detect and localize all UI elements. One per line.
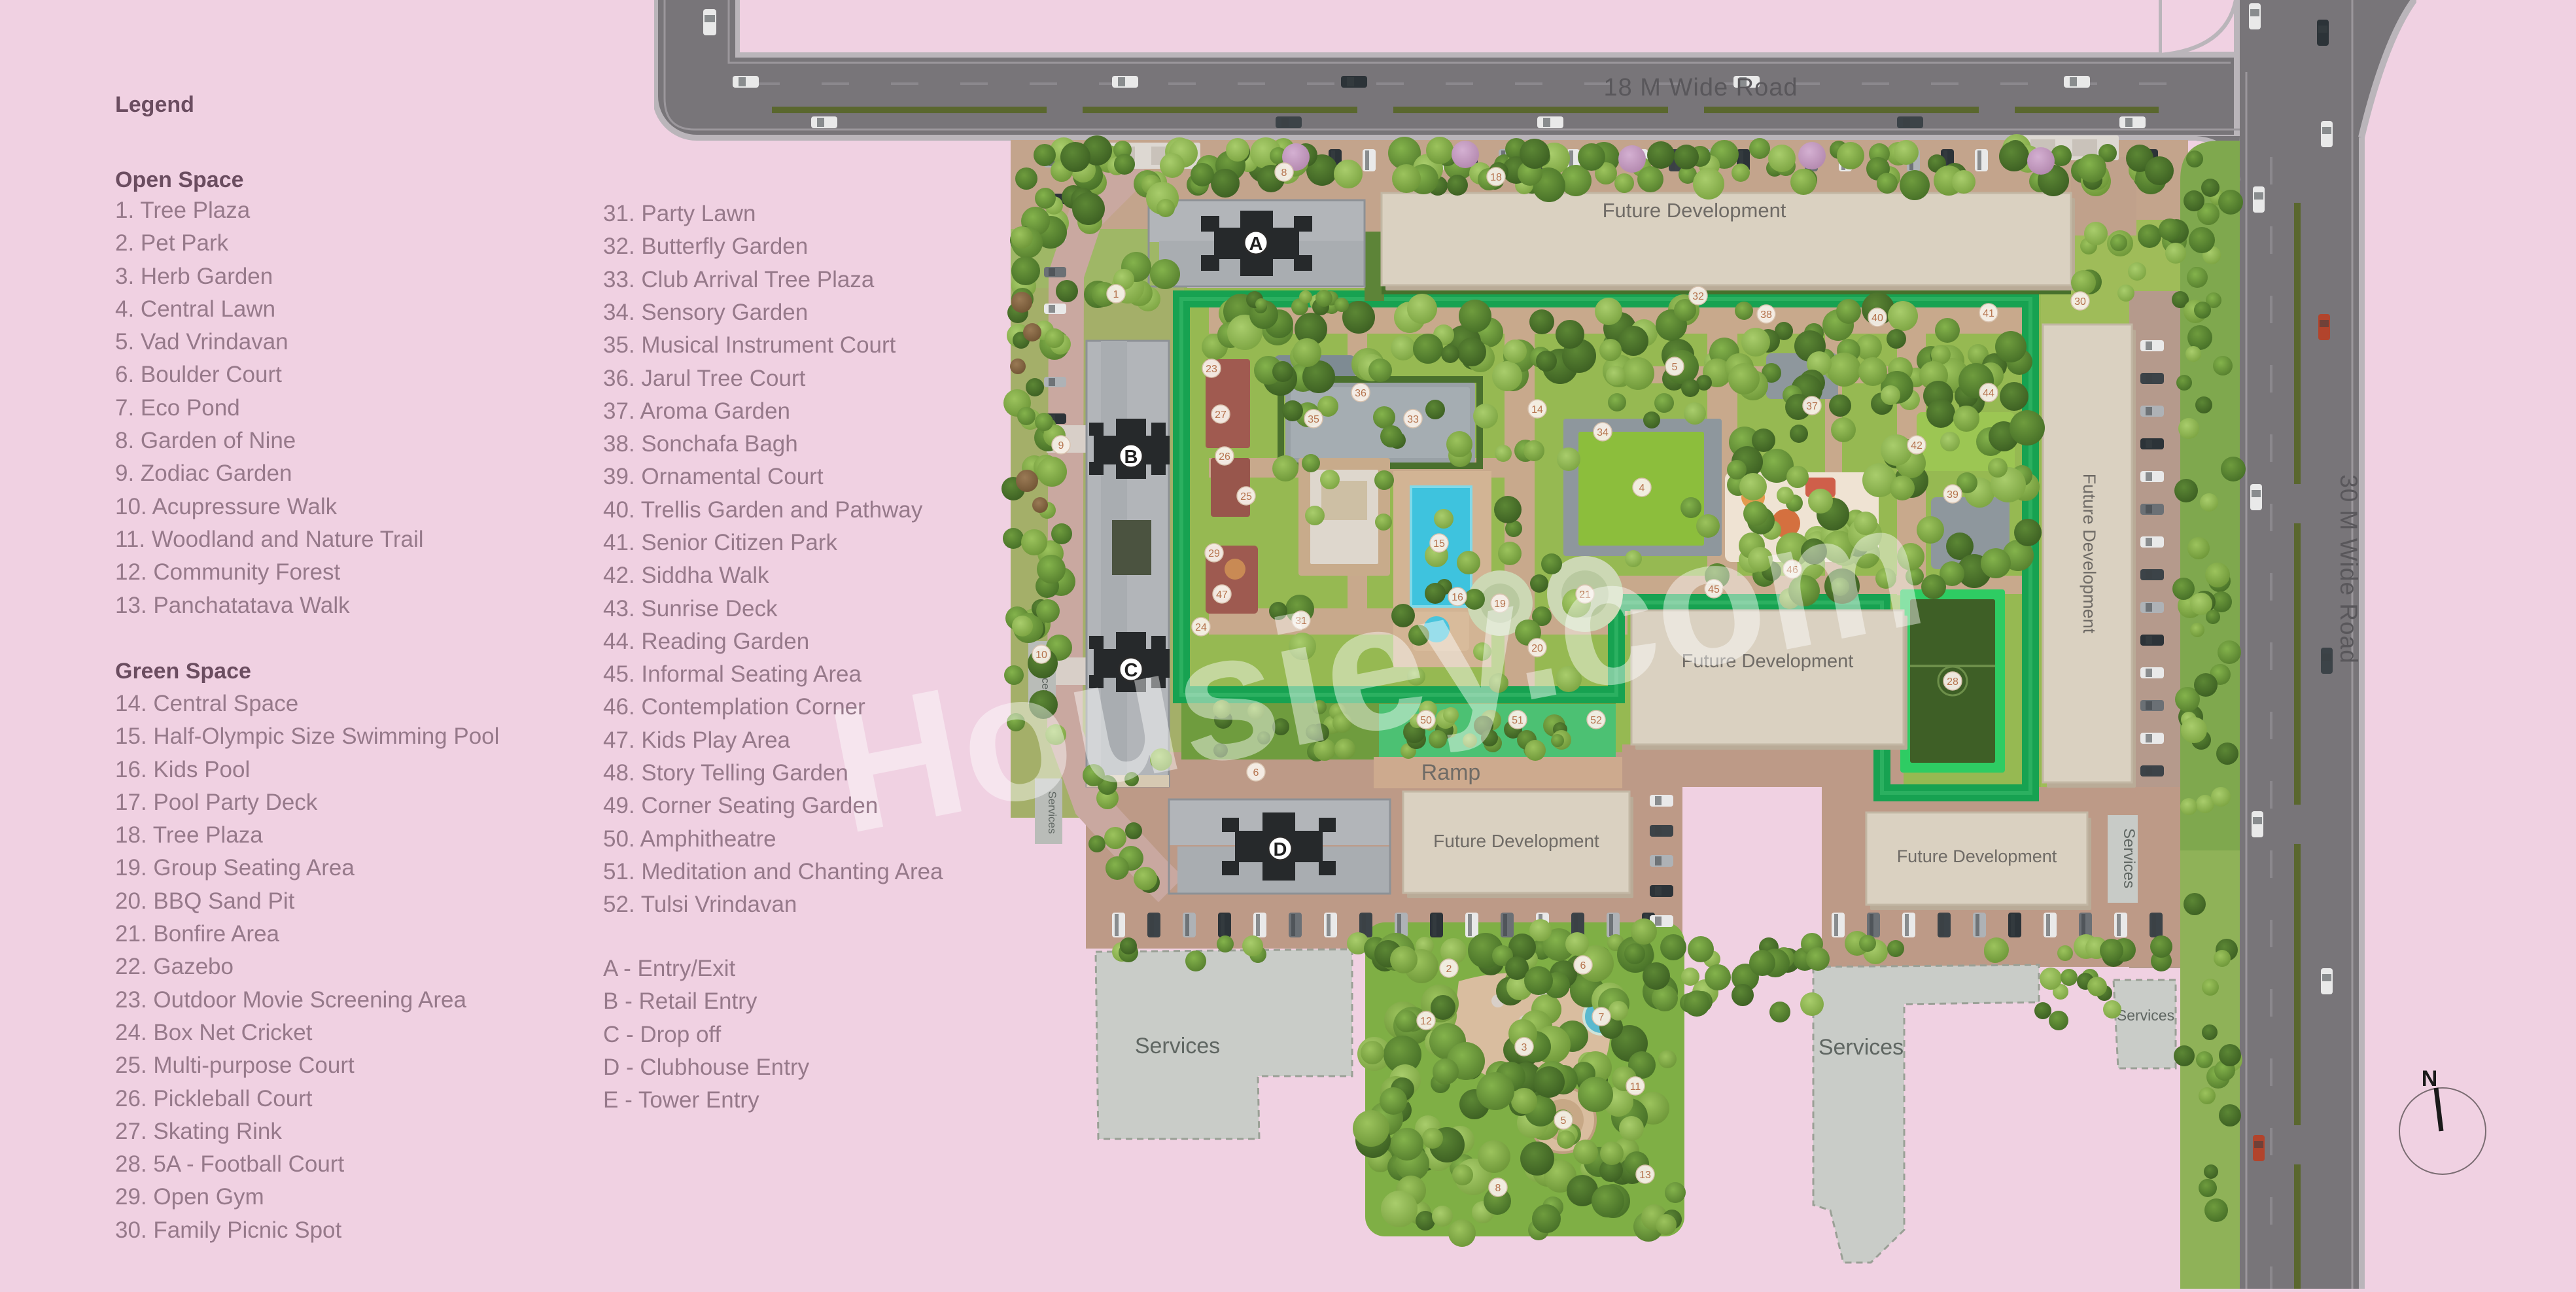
svg-text:42. Siddha Walk: 42. Siddha Walk: [603, 563, 769, 588]
svg-text:28: 28: [1947, 676, 1958, 688]
svg-text:8: 8: [1495, 1183, 1501, 1194]
svg-text:11. Woodland and Nature Trail: 11. Woodland and Nature Trail: [115, 527, 424, 552]
svg-text:13. Panchatatava Walk: 13. Panchatatava Walk: [115, 593, 350, 618]
svg-text:D - Clubhouse Entry: D - Clubhouse Entry: [603, 1055, 810, 1080]
svg-text:40: 40: [1871, 313, 1883, 324]
svg-text:20. BBQ Sand Pit: 20. BBQ Sand Pit: [115, 888, 295, 914]
svg-text:50. Amphitheatre: 50. Amphitheatre: [603, 826, 776, 852]
svg-text:22. Gazebo: 22. Gazebo: [115, 954, 234, 979]
svg-text:12: 12: [1420, 1016, 1432, 1027]
svg-text:1. Tree Plaza: 1. Tree Plaza: [115, 198, 251, 223]
svg-text:4. Central Lawn: 4. Central Lawn: [115, 296, 275, 322]
svg-text:25. Multi-purpose Court: 25. Multi-purpose Court: [115, 1053, 355, 1078]
svg-text:4: 4: [1639, 483, 1645, 494]
svg-text:3: 3: [1522, 1042, 1527, 1053]
svg-text:5: 5: [1672, 362, 1678, 373]
svg-text:Services: Services: [1819, 1035, 1904, 1060]
svg-text:49. Corner Seating Garden: 49. Corner Seating Garden: [603, 793, 878, 818]
svg-text:D: D: [1274, 839, 1287, 860]
svg-text:2. Pet Park: 2. Pet Park: [115, 230, 229, 256]
svg-text:8. Garden of Nine: 8. Garden of Nine: [115, 428, 296, 453]
svg-text:46. Contemplation Corner: 46. Contemplation Corner: [603, 694, 865, 720]
svg-text:14: 14: [1531, 404, 1543, 415]
svg-text:Future Development: Future Development: [2080, 474, 2099, 634]
svg-text:30 M Wide Road: 30 M Wide Road: [2335, 474, 2362, 664]
svg-text:31. Party Lawn: 31. Party Lawn: [603, 201, 756, 226]
svg-text:10. Acupressure Walk: 10. Acupressure Walk: [115, 494, 338, 519]
svg-text:47. Kids Play Area: 47. Kids Play Area: [603, 727, 791, 753]
svg-text:A - Entry/Exit: A - Entry/Exit: [603, 956, 736, 981]
svg-text:C - Drop off: C - Drop off: [603, 1022, 722, 1047]
svg-text:45. Informal Seating Area: 45. Informal Seating Area: [603, 661, 862, 687]
svg-text:B: B: [1124, 447, 1138, 468]
svg-text:18: 18: [1490, 172, 1502, 183]
svg-text:17. Pool Party Deck: 17. Pool Party Deck: [115, 790, 318, 815]
svg-text:7: 7: [1599, 1012, 1605, 1023]
svg-text:2: 2: [1446, 964, 1452, 975]
svg-text:9: 9: [1058, 440, 1064, 451]
svg-text:Green Space: Green Space: [115, 659, 251, 684]
svg-text:16. Kids Pool: 16. Kids Pool: [115, 757, 250, 782]
svg-text:23. Outdoor Movie Screening Ar: 23. Outdoor Movie Screening Area: [115, 987, 467, 1013]
svg-text:35: 35: [1308, 414, 1319, 425]
svg-text:12. Community Forest: 12. Community Forest: [115, 559, 341, 585]
svg-text:Services: Services: [1135, 1034, 1220, 1058]
svg-text:42: 42: [1911, 440, 1923, 451]
svg-text:15: 15: [1433, 538, 1445, 550]
svg-text:48. Story Telling Garden: 48. Story Telling Garden: [603, 760, 848, 786]
svg-text:11: 11: [1630, 1081, 1641, 1092]
svg-text:38. Sonchafa Bagh: 38. Sonchafa Bagh: [603, 431, 798, 457]
svg-text:36: 36: [1355, 388, 1366, 399]
svg-text:36. Jarul Tree Court: 36. Jarul Tree Court: [603, 366, 806, 391]
svg-text:Future Development: Future Development: [1897, 847, 2057, 866]
svg-text:24. Box Net Cricket: 24. Box Net Cricket: [115, 1020, 313, 1045]
svg-text:19. Group Seating Area: 19. Group Seating Area: [115, 855, 355, 881]
svg-text:40. Trellis Garden and Pathway: 40. Trellis Garden and Pathway: [603, 497, 923, 523]
svg-text:38: 38: [1760, 309, 1772, 321]
svg-text:3. Herb Garden: 3. Herb Garden: [115, 264, 273, 289]
svg-text:15. Half-Olympic Size Swimming: 15. Half-Olympic Size Swimming Pool: [115, 724, 499, 749]
svg-text:Legend: Legend: [115, 92, 194, 117]
svg-text:33: 33: [1407, 414, 1419, 425]
svg-text:21. Bonfire Area: 21. Bonfire Area: [115, 921, 280, 947]
svg-text:25: 25: [1240, 491, 1252, 502]
svg-text:43. Sunrise Deck: 43. Sunrise Deck: [603, 596, 778, 621]
svg-text:6: 6: [1580, 960, 1586, 971]
svg-text:37: 37: [1806, 401, 1818, 412]
svg-text:9. Zodiac Garden: 9. Zodiac Garden: [115, 461, 292, 486]
svg-text:41: 41: [1983, 308, 1994, 319]
svg-text:27: 27: [1215, 410, 1227, 421]
svg-text:6. Boulder Court: 6. Boulder Court: [115, 362, 282, 387]
svg-text:35. Musical Instrument Court: 35. Musical Instrument Court: [603, 332, 896, 358]
svg-text:Future Development: Future Development: [1433, 831, 1599, 851]
svg-text:39. Ornamental Court: 39. Ornamental Court: [603, 464, 824, 489]
svg-text:Services: Services: [2117, 1007, 2174, 1024]
svg-text:Ramp: Ramp: [1421, 760, 1481, 785]
svg-text:Future Development: Future Development: [1603, 199, 1786, 222]
svg-text:28. 5A - Football Court: 28. 5A - Football Court: [115, 1151, 344, 1177]
svg-text:18 M Wide Road: 18 M Wide Road: [1603, 74, 1798, 101]
svg-text:Open Space: Open Space: [115, 167, 244, 192]
svg-text:A: A: [1249, 234, 1263, 254]
svg-text:41. Senior Citizen Park: 41. Senior Citizen Park: [603, 530, 837, 555]
svg-text:18. Tree Plaza: 18. Tree Plaza: [115, 822, 263, 848]
svg-text:39: 39: [1947, 489, 1958, 500]
svg-text:26. Pickleball Court: 26. Pickleball Court: [115, 1086, 313, 1111]
svg-text:B - Retail Entry: B - Retail Entry: [603, 988, 757, 1014]
svg-text:37. Aroma Garden: 37. Aroma Garden: [603, 398, 790, 424]
svg-text:5: 5: [1561, 1115, 1567, 1126]
svg-text:34. Sensory Garden: 34. Sensory Garden: [603, 300, 808, 325]
svg-text:32. Butterfly Garden: 32. Butterfly Garden: [603, 234, 808, 259]
svg-text:23: 23: [1206, 364, 1217, 375]
svg-text:32: 32: [1692, 291, 1704, 302]
svg-text:30: 30: [2074, 296, 2086, 307]
svg-text:14. Central Space: 14. Central Space: [115, 691, 298, 716]
svg-text:5. Vad Vrindavan: 5. Vad Vrindavan: [115, 329, 288, 355]
svg-text:29: 29: [1208, 548, 1220, 559]
svg-text:27. Skating Rink: 27. Skating Rink: [115, 1119, 282, 1144]
svg-text:26: 26: [1219, 451, 1230, 463]
svg-text:33. Club Arrival Tree Plaza: 33. Club Arrival Tree Plaza: [603, 267, 875, 292]
svg-text:N: N: [2422, 1066, 2438, 1091]
svg-text:44: 44: [1983, 388, 1994, 399]
svg-text:29. Open Gym: 29. Open Gym: [115, 1184, 264, 1210]
svg-text:30. Family Picnic Spot: 30. Family Picnic Spot: [115, 1217, 342, 1243]
svg-text:44. Reading Garden: 44. Reading Garden: [603, 629, 809, 654]
svg-text:E - Tower Entry: E - Tower Entry: [603, 1087, 759, 1113]
svg-text:Services: Services: [2120, 828, 2138, 888]
svg-text:7. Eco Pond: 7. Eco Pond: [115, 395, 240, 421]
svg-text:8: 8: [1281, 167, 1287, 179]
svg-text:51. Meditation and Chanting Ar: 51. Meditation and Chanting Area: [603, 859, 943, 884]
svg-text:1: 1: [1113, 289, 1119, 300]
svg-text:34: 34: [1597, 427, 1609, 438]
svg-text:13: 13: [1639, 1170, 1651, 1181]
svg-text:52. Tulsi Vrindavan: 52. Tulsi Vrindavan: [603, 892, 797, 917]
